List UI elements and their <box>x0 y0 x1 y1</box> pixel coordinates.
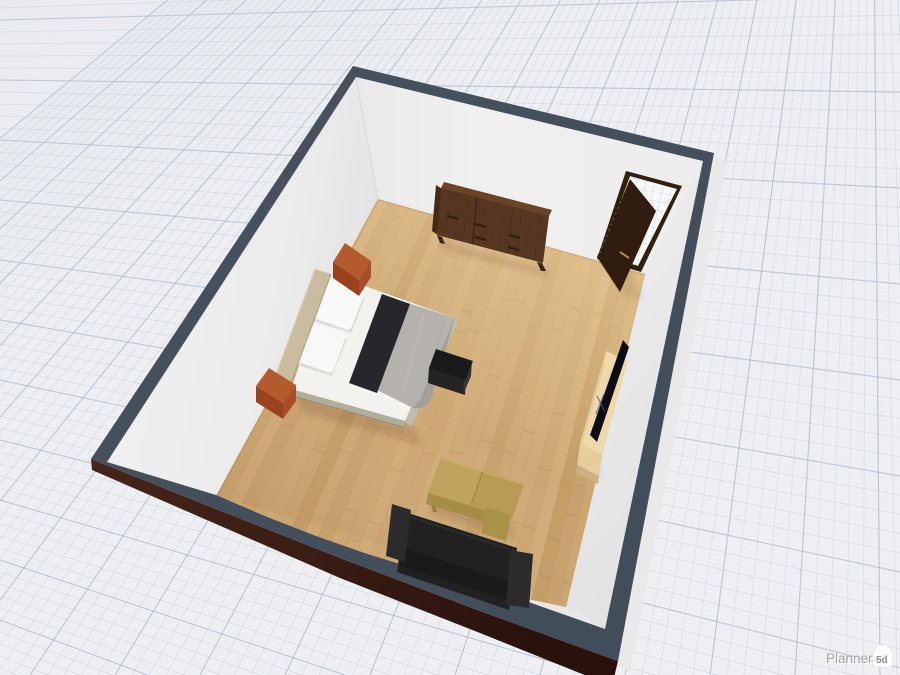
svg-text:Planner: Planner <box>826 651 873 666</box>
svg-text:5d: 5d <box>876 655 888 666</box>
